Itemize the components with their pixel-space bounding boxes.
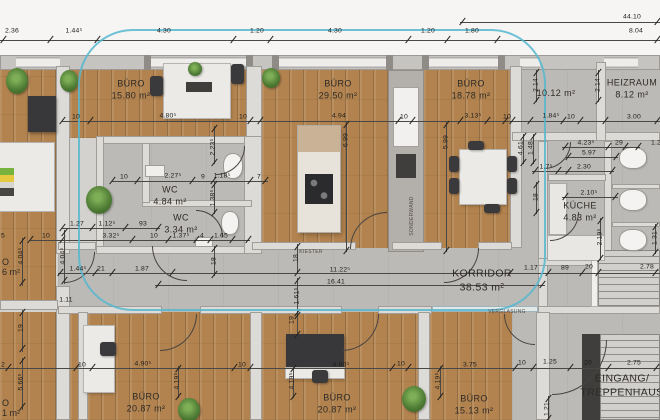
dimension-label: 20 [585,264,593,271]
dimension-label: 1.21 [544,402,551,416]
dimension-label: 10 [503,114,511,121]
room-name: BÜRO [127,391,166,403]
dimension-label: 3.00 [627,114,641,121]
room-label-buero-1: BÜRO15.80 m² [112,78,151,101]
plant [6,68,28,94]
dimension-label: 10 [72,114,80,121]
dimension-label: 10 [518,360,526,367]
dimension-label: 93 [139,221,147,228]
dimension-label: 4.23⁵ [577,140,594,147]
room-name: KÜCHE [563,200,597,212]
dimension-label: 2 [1,362,5,369]
wall-segment [604,141,612,266]
room-name: WC [153,184,186,196]
dimension-label: 6.99 [343,133,350,147]
dimension-label: 16.41 [327,279,345,286]
room-area: 18.78 m² [452,90,491,102]
dimension-label: 20 [584,360,592,367]
room-area: 4.83 m² [563,212,597,224]
dimension-label: 1.17 [524,265,538,272]
plant [402,386,426,412]
dimension-line [562,197,618,198]
dimension-label: 4.30 [328,28,342,35]
clipped-room-label: 1 m² [2,408,20,418]
dimension-label: 1.20 [250,28,264,35]
dimension-label: 4.80⁵ [159,113,176,120]
dimension-label: 1.44⁵ [65,28,82,35]
dimension-label: 2.27⁵ [164,173,181,180]
room-area: 20.87 m² [318,404,357,416]
clipped-room-label: O [2,257,9,267]
dimension-label: 10 [567,114,575,121]
dimension-label: 18 [293,254,300,262]
dimension-label: 1.31 [652,231,659,245]
room-label-korridor: KORRIDOR38.53 m² [452,267,512,294]
wall-segment [538,306,660,314]
room-area: 15.13 m² [455,405,494,417]
dimension-label: 3.13⁵ [464,113,481,120]
dimension-label: 1.84⁵ [542,113,559,120]
dimension-label: 1.44⁵ [69,266,86,273]
dimension-label: 10 [400,114,408,121]
window [16,57,60,68]
dimension-label: 4.90⁵ [134,361,151,368]
dimension-label: 10 [120,174,128,181]
dimension-label: 19 [18,324,25,332]
room-area: 29.50 m² [319,90,358,102]
dimension-label: 5.97 [582,150,596,157]
dimension-label: 5.66⁵ [18,373,25,390]
plant [178,398,200,420]
room-label-buero-3: BÜRO18.78 m² [452,78,491,101]
dimension-label: 10 [239,114,247,121]
annotation-label: SONDERWAND [409,196,415,235]
dimension-label: 5.99 [443,135,450,149]
dimension-label: 5 [1,233,5,240]
dimension-label: 2.78 [640,264,654,271]
dimension-label: 10 [150,233,158,240]
dimension-label: 4.04⁵ [18,247,25,264]
wall-segment [612,184,660,189]
dimension-label: 1.27 [70,221,84,228]
room-name: WC [164,212,197,224]
room-name: KORRIDOR [452,267,512,281]
desk [28,96,56,132]
dimension-label: 4 [200,233,204,240]
dimension-label: 1.7⁵ [539,164,552,171]
room-area: 3.34 m² [164,224,197,236]
dimension-label: 10 [238,362,246,369]
wall-segment [0,300,58,310]
floor-plan-screenshot: 44.102.361.44⁵4.301.204.301.201.808.0410… [0,0,660,420]
dimension-label: 4.30 [157,28,171,35]
plant [60,70,78,92]
toilet [620,148,646,168]
dimension-label: 1.11 [59,297,73,304]
window [604,57,638,68]
annotation-label: VERGLASUNG [488,309,526,315]
room-label-eingang-treppenhaus: EINGANG/TREPPENHAUS [580,372,660,399]
shelf-items [0,168,14,196]
room-label-wc-1: WC4.84 m² [153,184,186,207]
dimension-label: 18 [533,193,540,201]
stair-flight [598,250,660,306]
dimension-label: 1.80 [465,28,479,35]
dimension-label: 2.14 [595,78,602,92]
dimension-label: 11.22⁵ [330,267,351,274]
dimension-label: 4.19⁵ [289,372,296,389]
dimension-label: 29 [615,140,623,147]
dimension-label: 21 [97,266,105,273]
clipped-room-label: O [2,398,9,408]
dimension-label: 4.19⁵ [435,372,442,389]
chair [312,370,328,383]
dimension-label: 1.2 [651,140,660,147]
dimension-label: 1.25 [543,359,557,366]
dimension-label: 9 [201,174,205,181]
room-label-kueche: KÜCHE4.83 m² [563,200,597,223]
room-name: BÜRO [455,393,494,405]
dimension-label: 4.94 [332,113,346,120]
dimension-label: 2.10⁵ [580,190,597,197]
dimension-label: 3.75 [463,362,477,369]
dimension-label: 7 [257,174,261,181]
room-area: 15.80 m² [112,90,151,102]
room-area: 10.12 m² [537,88,576,100]
dimension-line [562,147,640,148]
dimension-label: 10 [397,361,405,368]
annotation-label: KIESTER [299,249,323,255]
room-name: BÜRO [452,78,491,90]
room-label-wc-2: WC3.34 m² [164,212,197,235]
dimension-label: 1.18⁵ [213,173,230,180]
dimension-label: 10 [78,362,86,369]
dimension-line [460,22,660,23]
dimension-label: 1.12⁵ [98,221,115,228]
dimension-label: 1.65 [214,233,228,240]
dimension-label: 2.19⁵ [597,228,604,245]
dimension-label: 10 [42,233,50,240]
room-name: HEIZRAUM [607,77,657,89]
chair [100,342,116,356]
dimension-line [566,157,618,158]
dimension-label: 2.75 [627,360,641,367]
room-name: BÜRO [319,78,358,90]
dimension-label: 1.20 [421,28,435,35]
room-area: 8.12 m² [607,89,657,101]
dimension-label: 1.61⁵ [294,287,301,304]
dimension-label: 4.90⁵ [332,362,349,369]
dimension-label: 19 [289,316,296,324]
dimension-label: 89 [561,265,569,272]
room-area: 4.84 m² [153,196,186,208]
room-area: TREPPENHAUS [580,386,660,400]
wall-segment [612,222,660,227]
dimension-label: 2.30 [577,164,591,171]
room-name: EINGANG/ [580,372,660,386]
room-name: BÜRO [112,78,151,90]
room-name: BÜRO [318,392,357,404]
dimension-label: 4.19⁵ [174,372,181,389]
dimension-label: 2.36 [5,28,19,35]
dimension-label: 2.23⁵ [210,138,217,155]
wall-segment [548,174,606,181]
dimension-label: 44.10 [623,14,641,21]
dimension-label: 4.61 [518,141,525,155]
room-area: 38.53 m² [452,281,512,295]
dimension-label: 8.04 [629,28,643,35]
dimension-label: 18 [211,257,218,265]
room-label-heizraum: HEIZRAUM8.12 m² [607,77,657,100]
desk [84,326,114,392]
dimension-label: 1.87 [135,266,149,273]
room-label-buero-6: BÜRO15.13 m² [455,393,494,416]
toilet [620,230,646,250]
room-label-buero-4: BÜRO20.87 m² [127,391,166,414]
room-area: 20.87 m² [127,403,166,415]
room-label-raum-1012: 10.12 m² [537,88,576,100]
dimension-label: 4.04⁵ [60,247,67,264]
dimension-line [0,368,660,369]
dimension-label: 1.38⁵ [210,189,217,206]
room-label-buero-5: BÜRO20.87 m² [318,392,357,415]
dimension-label: 3.32⁵ [102,233,119,240]
room-label-buero-2: BÜRO29.50 m² [319,78,358,101]
toilet [620,190,646,210]
clipped-room-label: 6 m² [2,267,20,277]
dimension-label: 1.48 [528,141,535,155]
